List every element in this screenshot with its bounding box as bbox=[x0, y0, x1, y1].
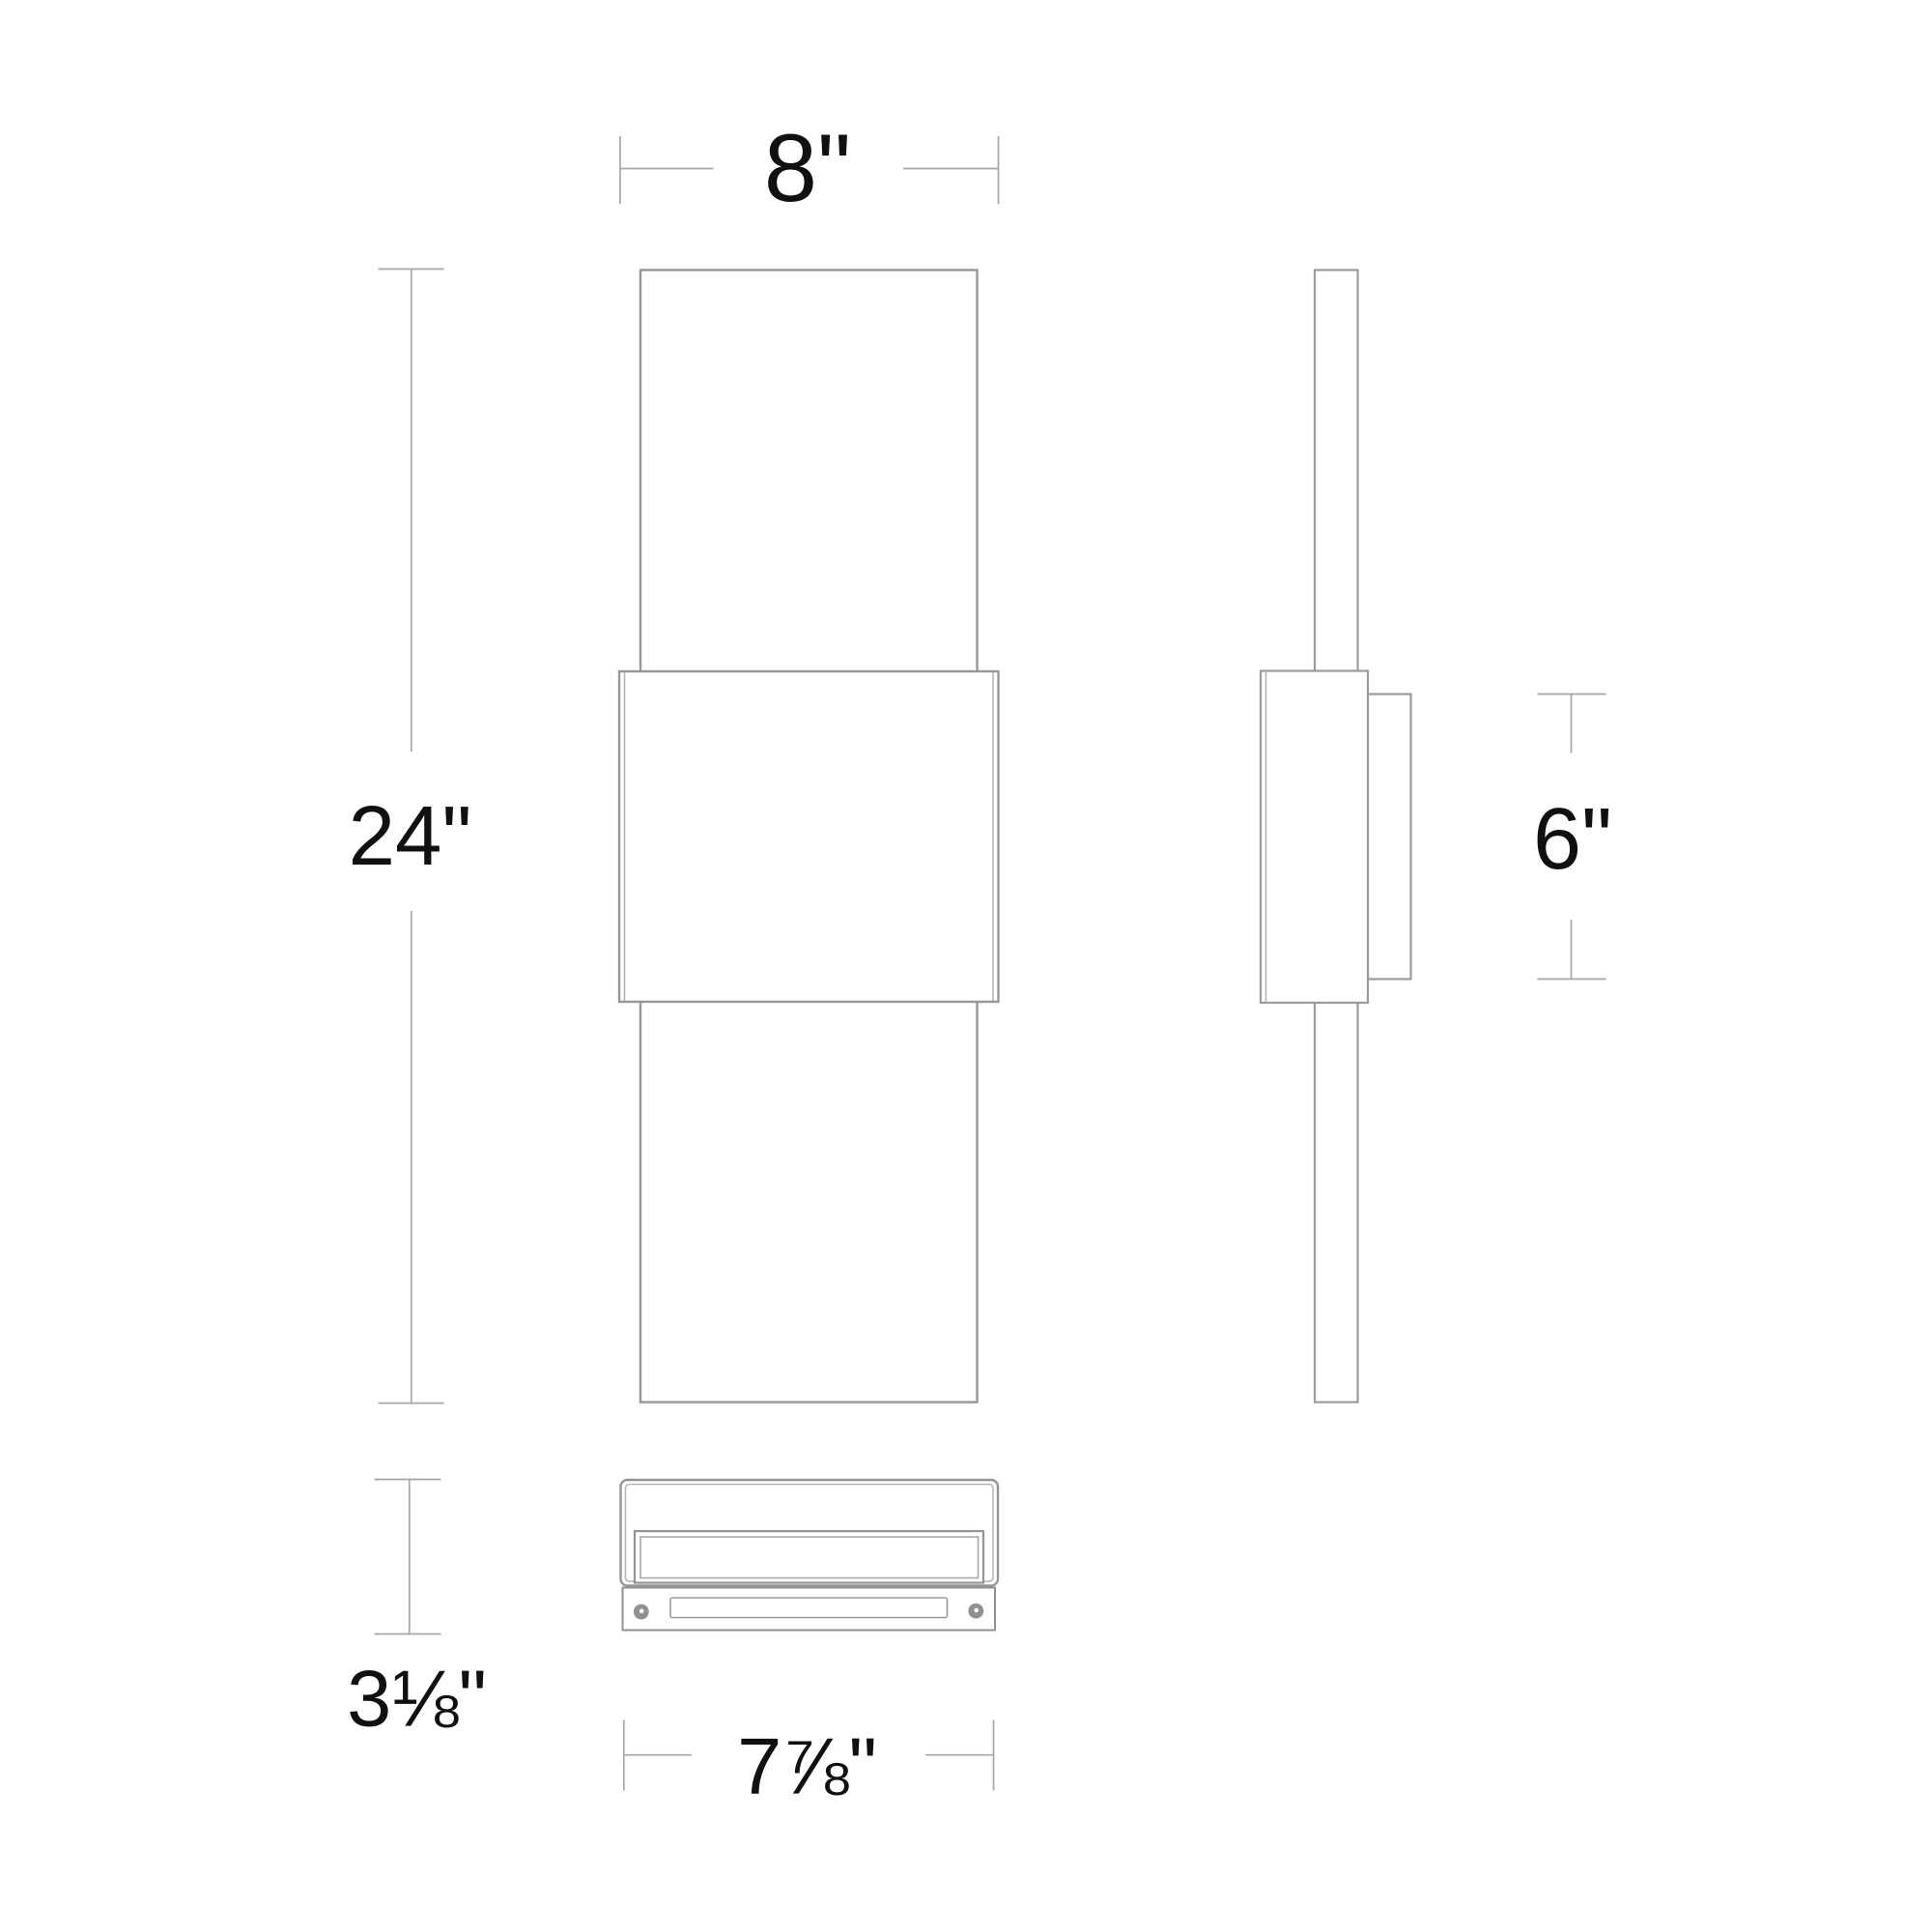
svg-text:3⅛": 3⅛" bbox=[347, 1654, 487, 1744]
svg-text:24": 24" bbox=[349, 789, 472, 883]
svg-text:6": 6" bbox=[1533, 791, 1612, 888]
svg-text:7⅞": 7⅞" bbox=[737, 1721, 877, 1811]
svg-text:8": 8" bbox=[764, 114, 851, 221]
